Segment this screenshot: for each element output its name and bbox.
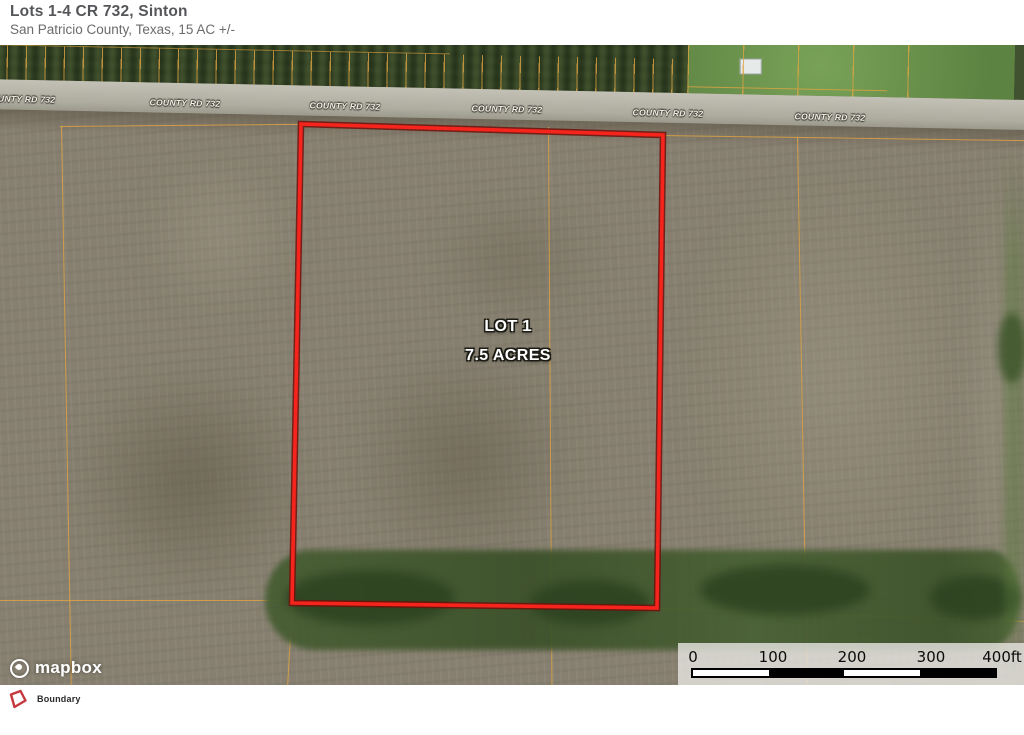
page-subtitle: San Patricio County, Texas, 15 AC +/- <box>10 22 235 37</box>
scale-tick: 100 <box>759 648 788 666</box>
map-scale-bar: 0 100 200 300 400ft <box>678 643 1024 685</box>
scale-segment <box>693 670 769 676</box>
scale-segment <box>844 670 920 676</box>
scale-segment <box>769 670 845 676</box>
scale-tick: 0 <box>688 648 698 666</box>
satellite-map[interactable]: COUNTY RD 732 COUNTY RD 732 COUNTY RD 73… <box>0 45 1024 685</box>
mapbox-attribution[interactable]: mapbox <box>10 658 102 678</box>
scale-tick: 300 <box>917 648 946 666</box>
lot-boundary-polygon <box>0 45 1024 685</box>
page-title: Lots 1-4 CR 732, Sinton <box>10 3 188 21</box>
mapbox-wordmark: mapbox <box>35 658 102 678</box>
mapbox-icon <box>10 659 29 678</box>
legend: Boundary <box>8 689 81 709</box>
boundary-legend-icon <box>8 689 28 709</box>
lot-name-label: LOT 1 <box>484 318 531 336</box>
scale-tick: 200 <box>838 648 867 666</box>
lot-area-label: 7.5 ACRES <box>465 347 551 365</box>
legend-item-label: Boundary <box>37 694 81 704</box>
scale-track <box>691 668 997 678</box>
scale-segment <box>920 670 996 676</box>
scale-tick: 400ft <box>982 648 1022 666</box>
header: Lots 1-4 CR 732, Sinton San Patricio Cou… <box>0 0 1024 45</box>
